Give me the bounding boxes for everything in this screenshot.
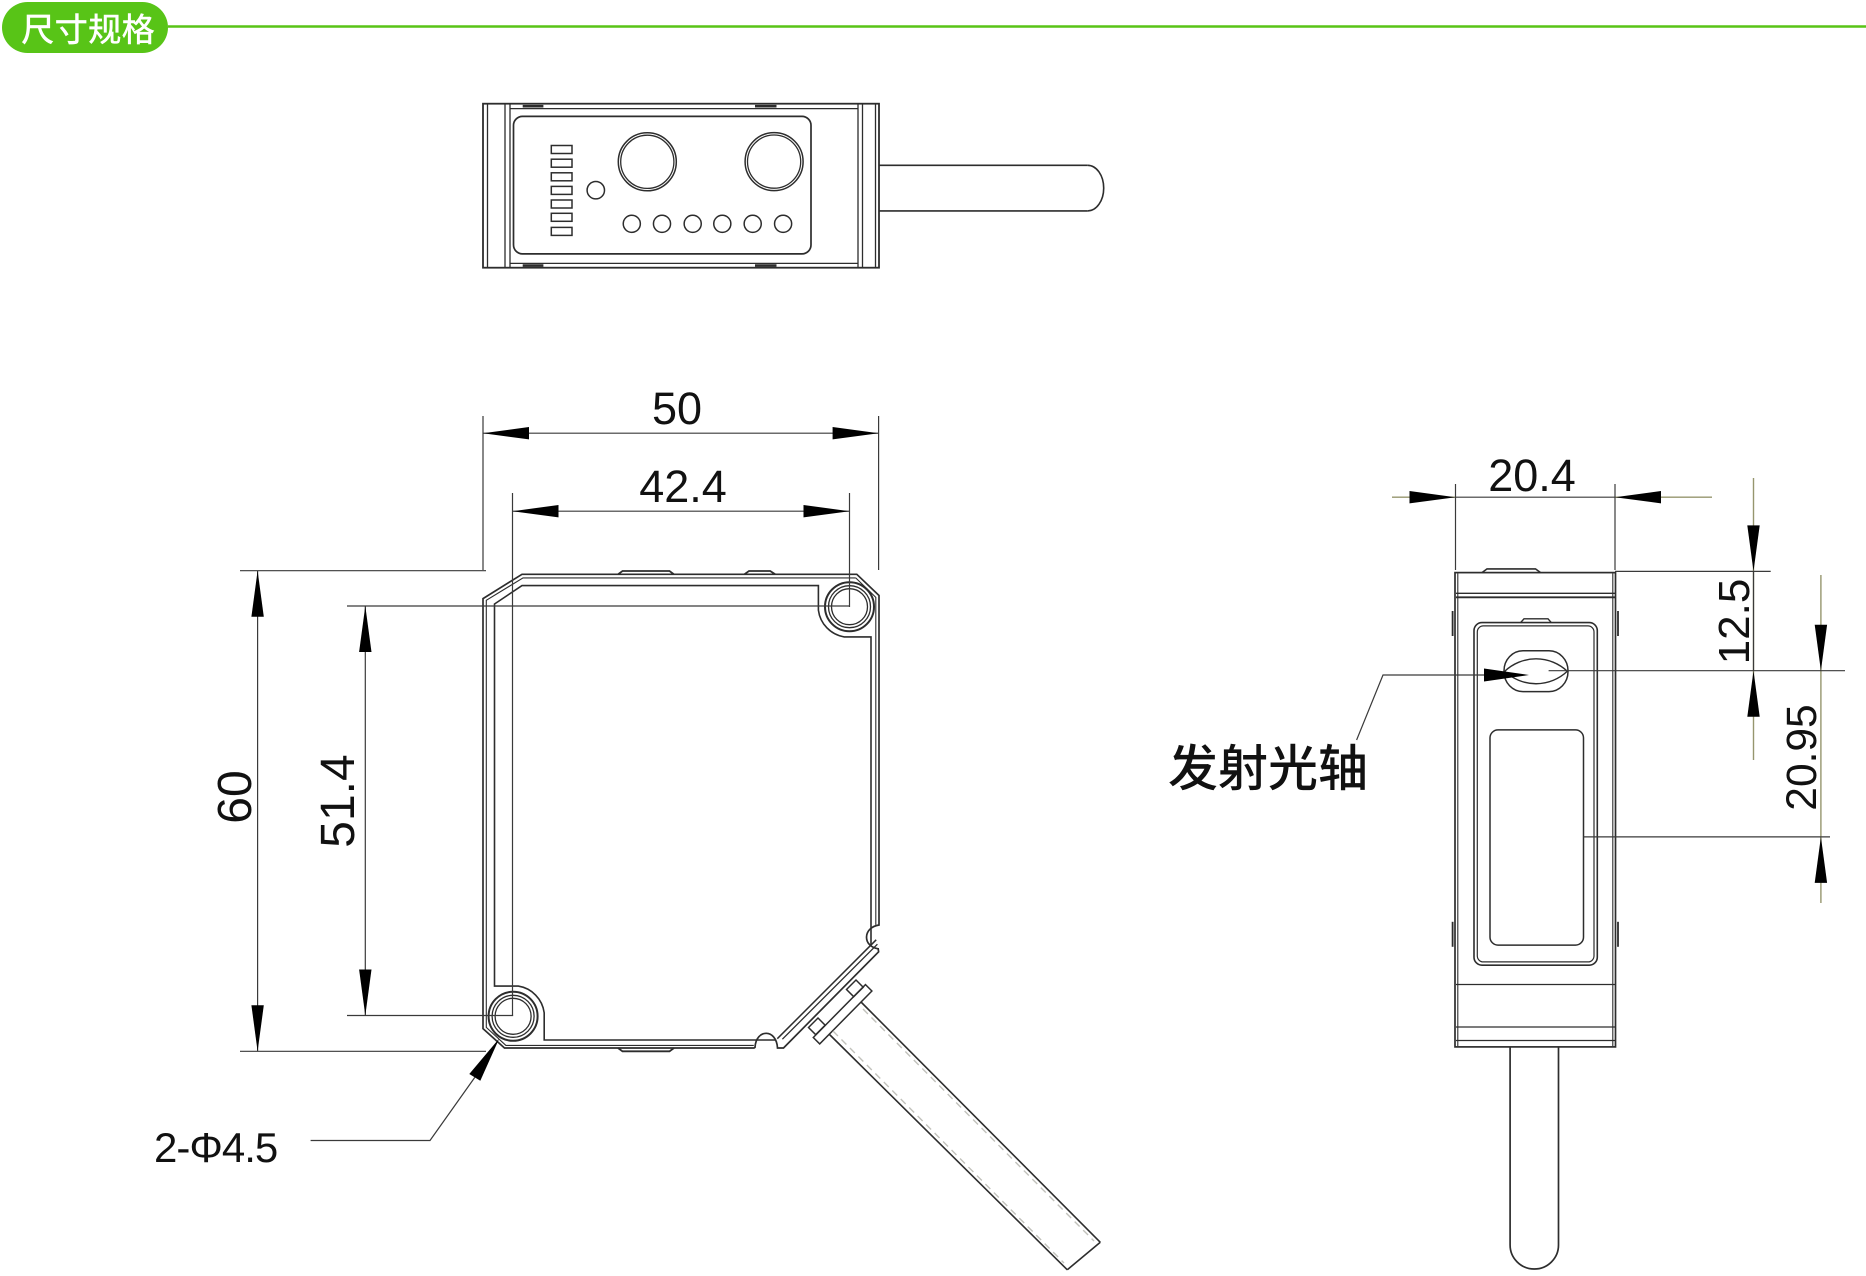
svg-text:2-Φ4.5: 2-Φ4.5	[154, 1124, 277, 1171]
svg-text:20.4: 20.4	[1488, 450, 1576, 501]
svg-text:42.4: 42.4	[639, 461, 727, 512]
svg-text:50: 50	[652, 383, 702, 434]
svg-text:60: 60	[209, 770, 262, 823]
svg-text:51.4: 51.4	[312, 754, 365, 847]
svg-text:20.95: 20.95	[1779, 704, 1826, 810]
svg-text:12.5: 12.5	[1710, 579, 1759, 665]
